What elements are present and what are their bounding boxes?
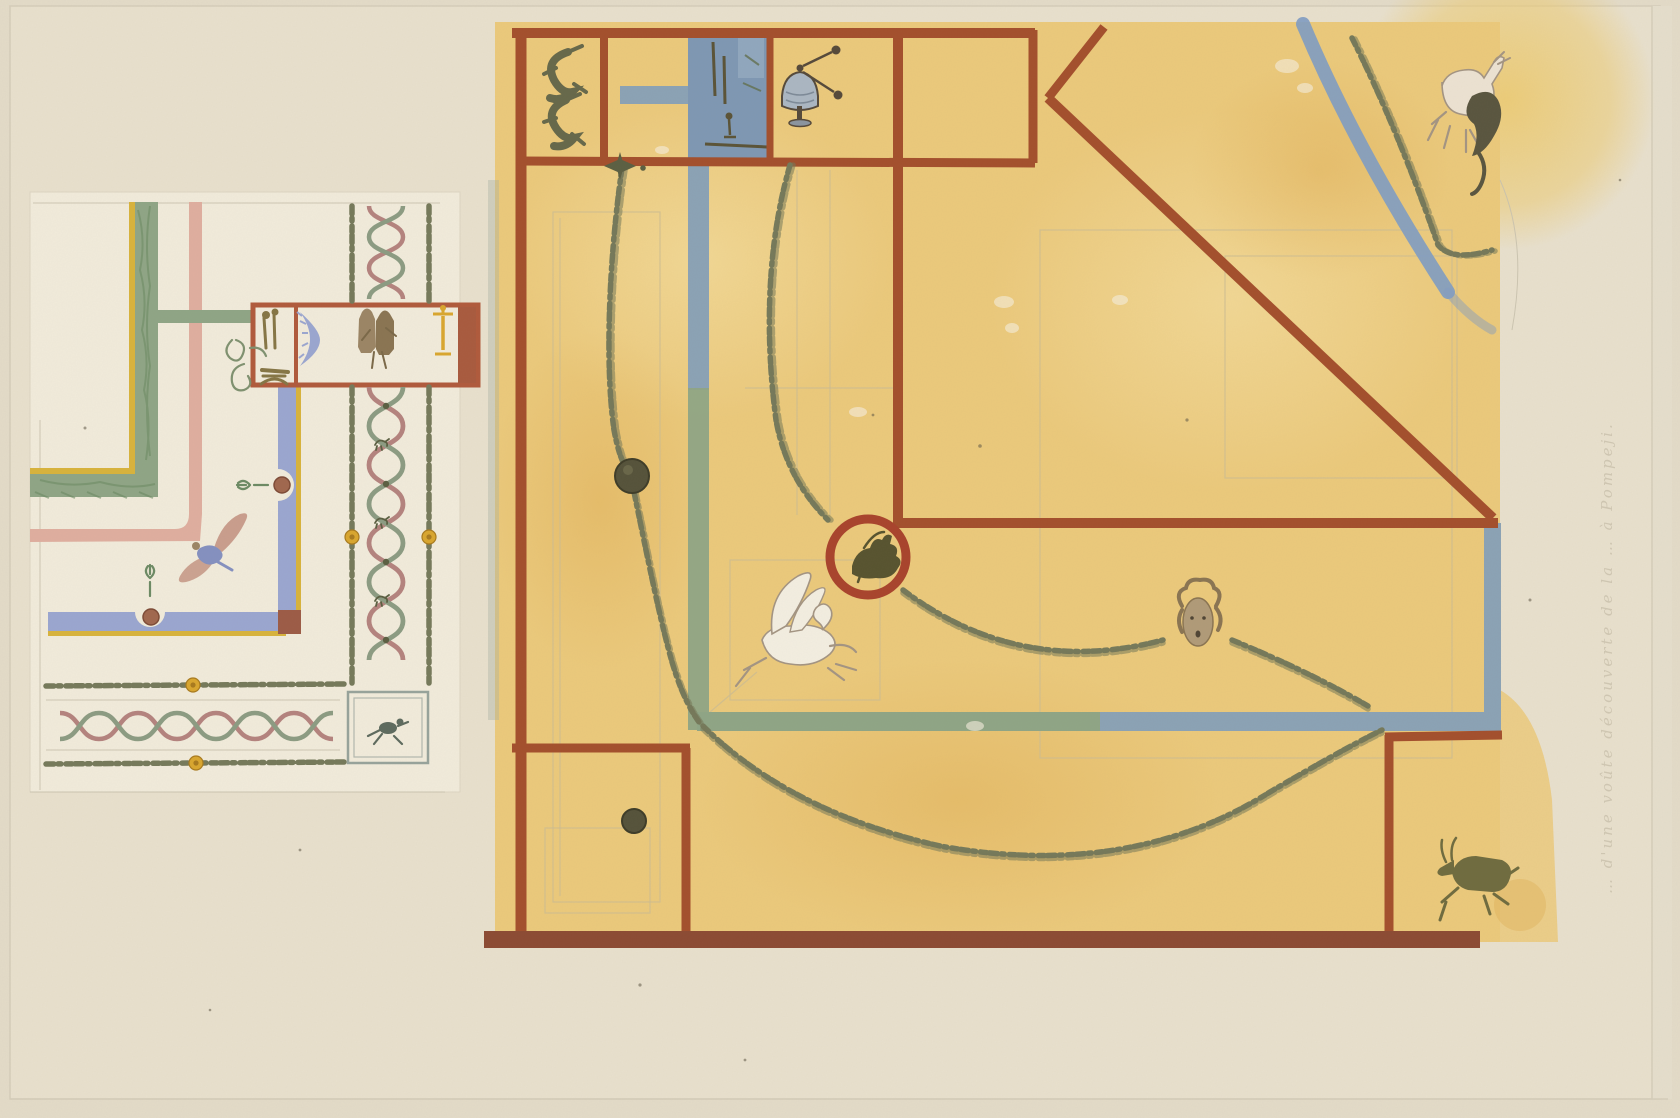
paper-grain: [0, 0, 1680, 1118]
painting-canvas: [0, 0, 1680, 1118]
margin-inscription: … d'une voûte découverte de la … à Pompe…: [1598, 218, 1632, 894]
artwork-sheet: … d'une voûte découverte de la … à Pompe…: [0, 0, 1680, 1118]
